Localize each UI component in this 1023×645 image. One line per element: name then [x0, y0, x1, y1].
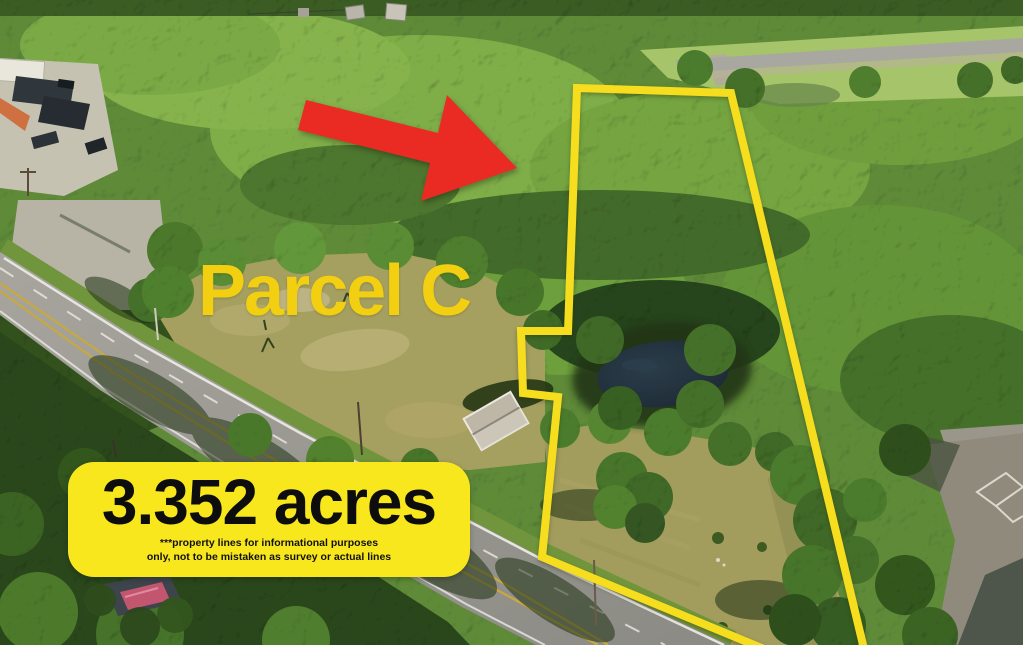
acreage-badge: 3.352 acres ***property lines for inform…	[68, 462, 470, 577]
real-estate-aerial-listing-image: Parcel C 3.352 acres ***property lines f…	[0, 0, 1023, 645]
acreage-value: 3.352 acres	[102, 472, 436, 533]
disclaimer-line-2: only, not to be mistaken as survey or ac…	[147, 550, 391, 564]
disclaimer-text: ***property lines for informational purp…	[147, 536, 391, 564]
neighboring-buildings	[0, 58, 118, 196]
disclaimer-line-1: ***property lines for informational purp…	[147, 536, 391, 550]
parcel-label: Parcel C	[198, 250, 470, 332]
